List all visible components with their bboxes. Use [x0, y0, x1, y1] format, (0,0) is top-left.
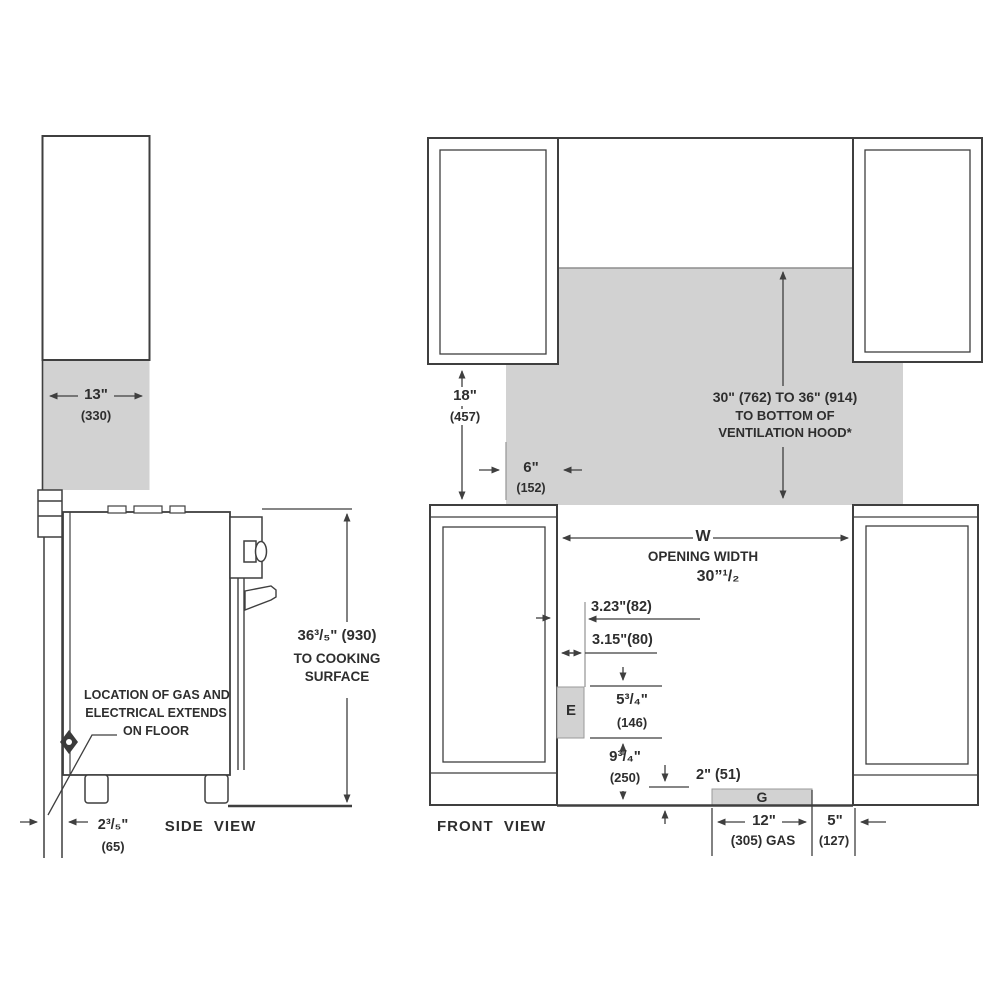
dim-6in-label: 6": [512, 459, 550, 478]
base-cabinet-left: [430, 505, 557, 805]
dim-18in-label: 18": [438, 387, 492, 406]
opening-width-label: OPENING WIDTH: [632, 549, 774, 566]
dim-2in-arrows: [649, 765, 689, 824]
dim-13in-label: 13": [60, 386, 132, 405]
diagram-linework: [0, 0, 1000, 1000]
dim-gap-label: 2³/₅": [84, 816, 142, 834]
dim-6in-mm-label: (152): [507, 481, 555, 497]
g-box-letter: G: [750, 789, 774, 807]
cooktop-burner-detail: [108, 506, 185, 513]
dim-2in-label: 2" (51): [696, 766, 760, 784]
dim-height-label: 36³/₅" (930): [283, 627, 391, 646]
side-wall: [38, 490, 62, 858]
dim-12in-mm-label: (305) GAS: [712, 833, 814, 850]
hood-dim-label-3: VENTILATION HOOD*: [698, 425, 872, 441]
dim-gap-mm-label: (65): [84, 839, 142, 855]
oven-handle: [245, 586, 276, 610]
dim-13in-mm-label: (330): [60, 408, 132, 424]
upper-cabinet-right: [853, 138, 982, 362]
gas-note-line2: ELECTRICAL EXTENDS: [84, 704, 228, 722]
side-tall-cabinet: [43, 136, 150, 360]
gas-note: LOCATION OF GAS AND ELECTRICAL EXTENDS O…: [84, 686, 228, 740]
control-knob-icon: [256, 542, 267, 562]
gas-note-line3: ON FLOOR: [84, 722, 228, 740]
gas-note-line1: LOCATION OF GAS AND: [84, 686, 228, 704]
dim-18in-mm-label: (457): [433, 409, 497, 425]
dim-534-label: 5³/₄": [603, 691, 661, 710]
range-leg: [205, 775, 228, 803]
front-view-title: FRONT VIEW: [437, 818, 557, 837]
front-view-drawing: [428, 138, 983, 856]
side-view-title: SIDE VIEW: [158, 818, 263, 837]
dim-934-mm-label: (250): [597, 770, 653, 786]
dim-height-label-3: SURFACE: [283, 669, 391, 686]
oven-door: [238, 578, 276, 770]
e-box-letter: E: [559, 702, 583, 721]
side-range-body: [63, 506, 276, 803]
range-leg: [85, 775, 108, 803]
opening-width-letter: W: [686, 527, 720, 547]
dim-534-mm-label: (146): [603, 715, 661, 731]
opening-width-value: 30”¹/₂: [686, 567, 750, 587]
control-knob-icon: [244, 541, 256, 562]
hood-dim-label-1: 30" (762) TO 36" (914): [693, 389, 877, 407]
dim-5in-mm-label: (127): [809, 833, 859, 849]
dim-5in-label: 5": [818, 812, 852, 831]
dim-323-label: 3.23"(82): [591, 598, 691, 616]
dim-934-label: 9³/₄": [597, 748, 653, 767]
dim-height-label-2: TO COOKING: [283, 651, 391, 668]
upper-cabinet-left: [428, 138, 558, 364]
installation-diagram: 13" (330) 36³/₅" (930) TO COOKING SURFAC…: [0, 0, 1000, 1000]
side-clearance-gray-area: [43, 360, 150, 490]
control-panel: [230, 517, 267, 578]
dim-315-label: 3.15"(80): [592, 631, 692, 649]
hood-dim-label-2: TO BOTTOM OF: [713, 408, 857, 424]
base-cabinet-right: [853, 505, 978, 805]
side-view-drawing: [20, 136, 352, 858]
dim-12in-label: 12": [742, 812, 786, 831]
